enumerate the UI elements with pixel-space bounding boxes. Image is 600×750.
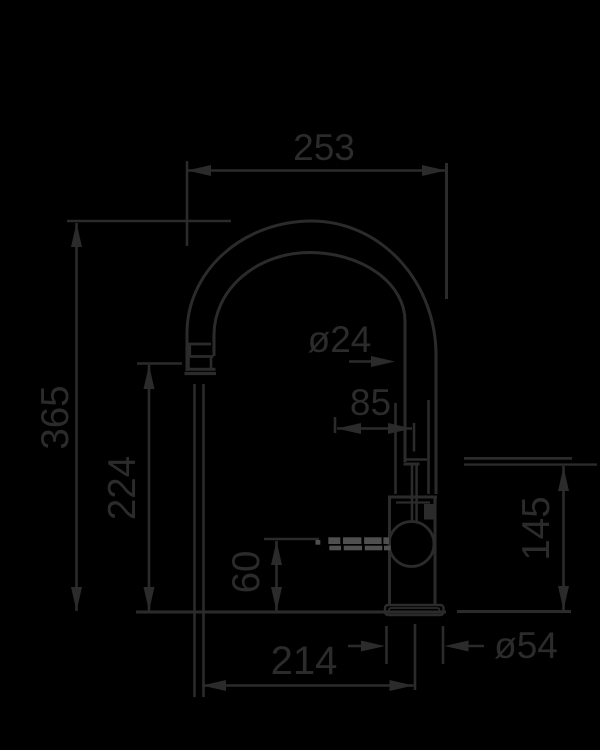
svg-text:ø24: ø24 — [308, 319, 372, 360]
svg-text:214: 214 — [271, 639, 338, 683]
svg-text:ø54: ø54 — [494, 625, 558, 666]
svg-text:85: 85 — [350, 382, 391, 423]
svg-text:365: 365 — [34, 385, 77, 449]
svg-text:145: 145 — [515, 496, 558, 560]
svg-text:253: 253 — [293, 127, 355, 168]
svg-text:60: 60 — [225, 551, 268, 594]
svg-text:224: 224 — [101, 456, 144, 520]
